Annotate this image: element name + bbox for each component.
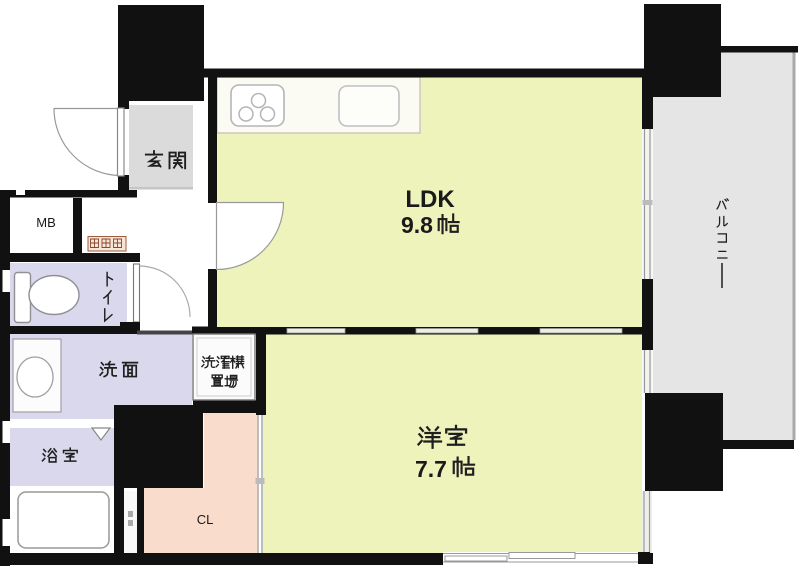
svg-text:9.8: 9.8 — [401, 212, 433, 238]
svg-text:7.7: 7.7 — [415, 456, 447, 482]
svg-text:LDK: LDK — [405, 186, 455, 213]
svg-text:CL: CL — [197, 512, 214, 527]
svg-text:MB: MB — [36, 215, 56, 230]
